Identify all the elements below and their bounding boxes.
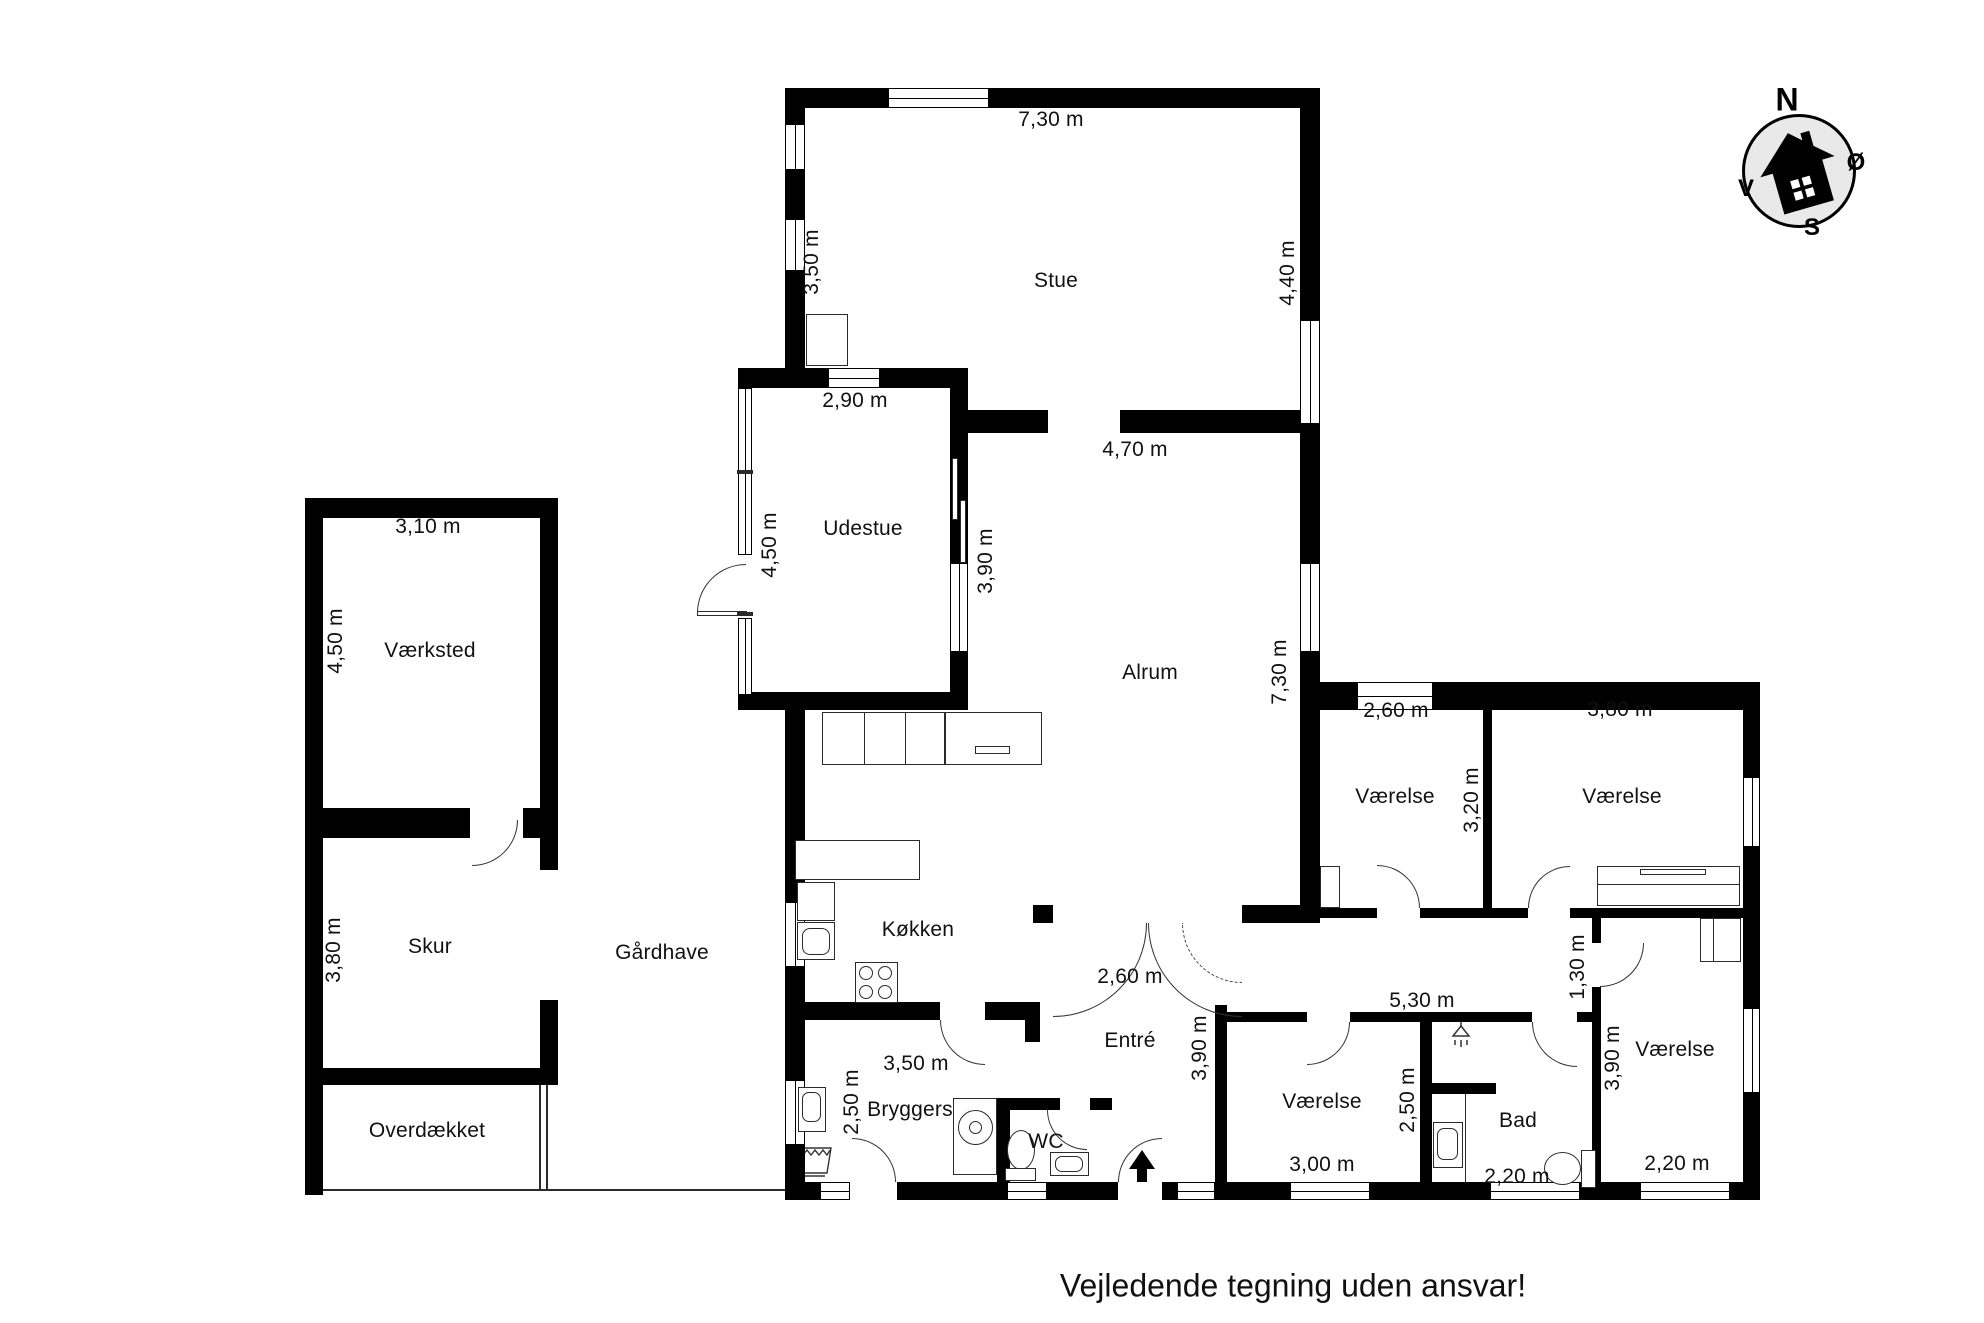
room-label-vaerelse: Værelse <box>1635 1038 1715 1062</box>
room-label-vaerelse: Værelse <box>1355 785 1435 809</box>
window <box>950 563 968 652</box>
dimension-label: 4,40 m <box>1276 240 1300 305</box>
dimension-label: 3,20 m <box>1460 767 1484 832</box>
door-arc <box>1532 1022 1577 1067</box>
house-icon <box>1753 126 1845 218</box>
dimension-label: 7,30 m <box>1018 108 1083 132</box>
door-arc <box>1600 943 1644 987</box>
dimension-label: 3,80 m <box>322 917 346 982</box>
door-opening <box>1118 1182 1162 1200</box>
door-arc <box>852 1138 896 1182</box>
window <box>1743 1008 1760 1093</box>
fireplace-box <box>806 314 848 366</box>
door-opening <box>850 1182 897 1200</box>
boundary-line <box>323 1189 785 1191</box>
wall <box>785 1182 1760 1200</box>
compass-east-label: Ø <box>1847 149 1866 177</box>
wall <box>1743 682 1760 1200</box>
fridge-box <box>822 712 865 765</box>
door-arc <box>1377 865 1420 908</box>
boundary-line <box>737 470 753 474</box>
room-label-entre: Entré <box>1104 1029 1155 1053</box>
boundary-line <box>1465 1094 1466 1182</box>
window <box>820 1182 850 1200</box>
dimension-label: 2,20 m <box>1484 1165 1549 1189</box>
compass-south-label: S <box>1804 214 1820 242</box>
sliding-door <box>952 458 958 520</box>
room-label-gaardhave: Gårdhave <box>615 941 709 965</box>
boundary-line <box>539 1085 541 1190</box>
kitchen-counter <box>795 840 920 880</box>
burner-icon <box>859 966 873 980</box>
dimension-label: 7,30 m <box>1268 639 1292 704</box>
room-label-bryggers: Bryggers <box>867 1098 953 1122</box>
burner-icon <box>878 985 892 999</box>
wall <box>1090 1098 1112 1110</box>
dimension-label: 3,90 m <box>1601 1025 1625 1090</box>
wall <box>1025 1002 1040 1042</box>
door-opening <box>1528 908 1570 918</box>
wall <box>305 1068 558 1085</box>
window <box>1290 1182 1370 1200</box>
oven-box <box>905 712 945 765</box>
dimension-label: 2,20 m <box>1644 1152 1709 1176</box>
dimension-label: 3,50 m <box>800 229 824 294</box>
door-arc <box>1307 1022 1350 1065</box>
window <box>888 88 989 108</box>
wall <box>1420 1012 1432 1182</box>
dimension-label: 2,50 m <box>1396 1067 1420 1132</box>
wall <box>1215 1005 1227 1182</box>
window <box>785 124 805 170</box>
window <box>1300 320 1320 424</box>
room-label-wc: WC <box>1028 1130 1063 1154</box>
washer-drum <box>969 1121 982 1134</box>
room-label-overdaekket: Overdækket <box>369 1119 485 1143</box>
wall <box>785 88 1320 108</box>
room-label-bad: Bad <box>1499 1109 1537 1133</box>
room-label-vaerelse: Værelse <box>1282 1090 1362 1114</box>
wall <box>1483 710 1492 910</box>
door-arc <box>1528 866 1570 908</box>
dimension-label: 4,50 m <box>324 608 348 673</box>
room-label-udestue: Udestue <box>823 517 903 541</box>
sliding-door <box>960 500 966 563</box>
dishwasher-box <box>797 882 835 921</box>
room-label-skur: Skur <box>408 935 452 959</box>
dimension-label: 3,80 m <box>1587 698 1652 722</box>
dimension-label: 2,60 m <box>1363 699 1428 723</box>
burner-icon <box>859 985 873 999</box>
dimension-label: 3,90 m <box>974 528 998 593</box>
kitchen-counter <box>945 712 1042 765</box>
wall <box>985 1002 1025 1020</box>
wall <box>1300 88 1320 908</box>
window <box>1300 563 1320 652</box>
wall <box>738 692 968 710</box>
wall <box>540 498 558 838</box>
toilet-tank <box>1005 1168 1036 1181</box>
window <box>1743 777 1760 847</box>
burner-icon <box>878 966 892 980</box>
wall <box>785 1002 940 1020</box>
disclaimer-text: Vejledende tegning uden ansvar! <box>1060 1268 1526 1305</box>
room-label-vaerelse: Værelse <box>1582 785 1662 809</box>
door-arc <box>1118 1138 1162 1182</box>
shower-icon <box>1448 1018 1474 1052</box>
window <box>1177 1182 1215 1200</box>
closet-line <box>1597 884 1740 885</box>
room-label-vaerksted: Værksted <box>384 639 475 663</box>
wall <box>997 1098 1060 1110</box>
dimension-label: 2,60 m <box>1097 965 1162 989</box>
room-label-koekken: Køkken <box>882 918 954 942</box>
dimension-label: 3,90 m <box>1188 1015 1212 1080</box>
wall <box>1600 908 1745 918</box>
dimension-label: 2,50 m <box>840 1069 864 1134</box>
sink-basin <box>802 1092 821 1122</box>
room-label-alrum: Alrum <box>1122 661 1178 685</box>
room-label-stue: Stue <box>1034 269 1078 293</box>
compass-north-label: N <box>1775 82 1798 119</box>
door-arc <box>697 564 746 613</box>
floor-plan-canvas: N Ø S V OVN Vejledende tegning uden ansv… <box>0 0 1984 1323</box>
fridge-box <box>864 712 906 765</box>
closet-line <box>1713 918 1714 962</box>
door-opening <box>1307 1012 1350 1022</box>
window <box>1640 1182 1730 1200</box>
kitchen-counter <box>975 746 1010 754</box>
wall <box>305 498 323 1195</box>
dimension-label: 1,30 m <box>1566 934 1590 999</box>
wall <box>1120 410 1300 433</box>
wall <box>1242 905 1320 923</box>
window <box>738 618 752 695</box>
window <box>828 368 880 388</box>
sink-basin <box>1437 1128 1458 1160</box>
dimension-label: 3,50 m <box>883 1052 948 1076</box>
door-opening <box>1532 1012 1577 1022</box>
compass-west-label: V <box>1738 175 1754 203</box>
door-arc <box>472 820 518 866</box>
sink-basin <box>1055 1156 1083 1172</box>
dimension-label: 4,50 m <box>758 512 782 577</box>
dimension-label: 3,00 m <box>1289 1153 1354 1177</box>
dimension-label: 2,90 m <box>822 389 887 413</box>
closet-door-track <box>1640 869 1706 875</box>
toilet-tank <box>1581 1150 1596 1188</box>
wall <box>1033 905 1053 923</box>
sink-basin <box>802 928 830 955</box>
wall <box>1429 1083 1496 1094</box>
boundary-line <box>546 1085 548 1190</box>
dimension-label: 4,70 m <box>1102 438 1167 462</box>
dimension-label: 3,10 m <box>395 515 460 539</box>
wall <box>540 838 558 870</box>
wall <box>968 410 1048 433</box>
door-opening <box>1377 908 1420 918</box>
window <box>1007 1182 1047 1200</box>
dimension-label: 5,30 m <box>1389 989 1454 1013</box>
closet <box>1320 866 1340 908</box>
closet <box>1700 918 1741 962</box>
